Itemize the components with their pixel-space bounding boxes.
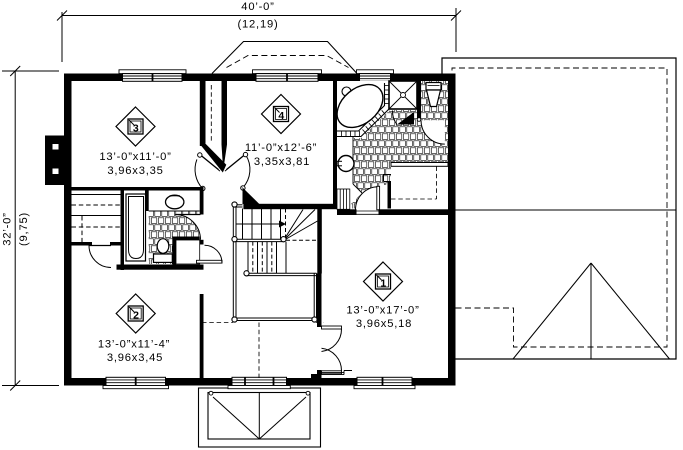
svg-text:13’-0”x11’-0”: 13’-0”x11’-0” — [99, 151, 171, 163]
svg-text:3,96x5,18: 3,96x5,18 — [356, 318, 412, 330]
svg-text:32’-0”: 32’-0” — [2, 212, 14, 245]
svg-text:1: 1 — [380, 278, 386, 290]
svg-text:4: 4 — [278, 110, 284, 122]
svg-text:11’-0”x12’-6”: 11’-0”x12’-6” — [245, 142, 317, 154]
svg-text:3,96x3,35: 3,96x3,35 — [107, 165, 163, 177]
svg-text:40’-0”: 40’-0” — [241, 1, 274, 13]
svg-text:13’-0”x11’-4”: 13’-0”x11’-4” — [98, 339, 170, 351]
svg-text:3,96x3,45: 3,96x3,45 — [107, 352, 163, 364]
svg-text:(9,75): (9,75) — [18, 212, 30, 246]
svg-text:2: 2 — [133, 310, 139, 322]
svg-text:13’-0”x17’-0”: 13’-0”x17’-0” — [346, 305, 419, 317]
svg-text:3: 3 — [133, 123, 139, 135]
svg-text:3,35x3,81: 3,35x3,81 — [254, 156, 310, 168]
svg-text:(12,19): (12,19) — [237, 19, 278, 31]
